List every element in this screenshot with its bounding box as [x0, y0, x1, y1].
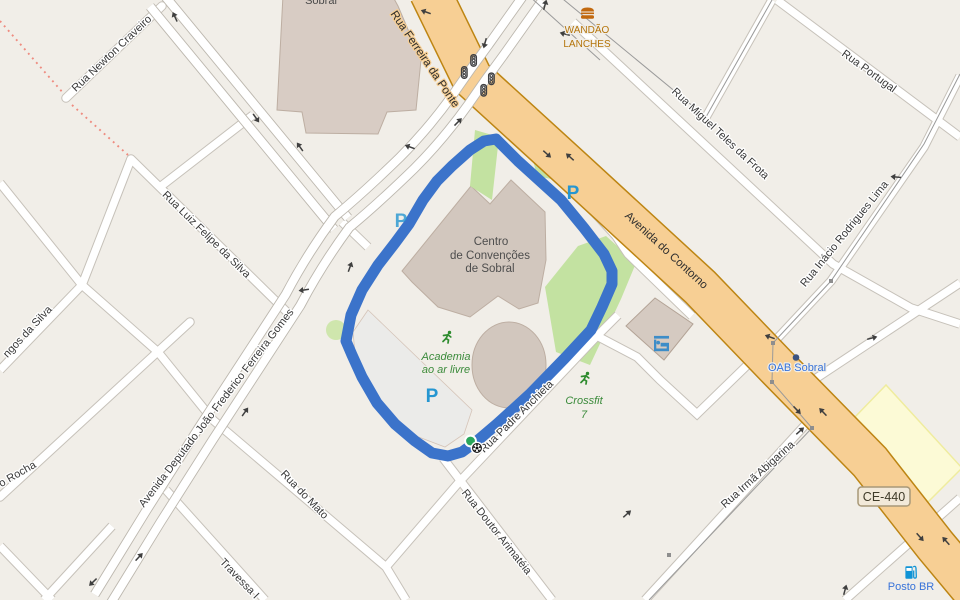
svg-text:7: 7 — [581, 409, 588, 421]
svg-text:P: P — [426, 386, 439, 407]
svg-text:Centro: Centro — [474, 236, 509, 248]
svg-text:de Convenções: de Convenções — [450, 250, 530, 262]
svg-text:Crossfit: Crossfit — [565, 395, 603, 407]
svg-text:P: P — [395, 211, 408, 232]
svg-text:LANCHES: LANCHES — [563, 39, 611, 50]
svg-text:P: P — [567, 183, 580, 204]
svg-text:Posto BR: Posto BR — [888, 581, 935, 593]
svg-text:de Sobral: de Sobral — [465, 263, 514, 275]
svg-text:Academia: Academia — [421, 351, 471, 363]
svg-text:Sobral: Sobral — [305, 0, 337, 7]
svg-text:WANDÃO: WANDÃO — [565, 23, 610, 36]
svg-text:ao ar livre: ao ar livre — [422, 364, 470, 376]
svg-text:CE-440: CE-440 — [863, 490, 905, 504]
svg-text:OAB Sobral: OAB Sobral — [768, 362, 826, 374]
